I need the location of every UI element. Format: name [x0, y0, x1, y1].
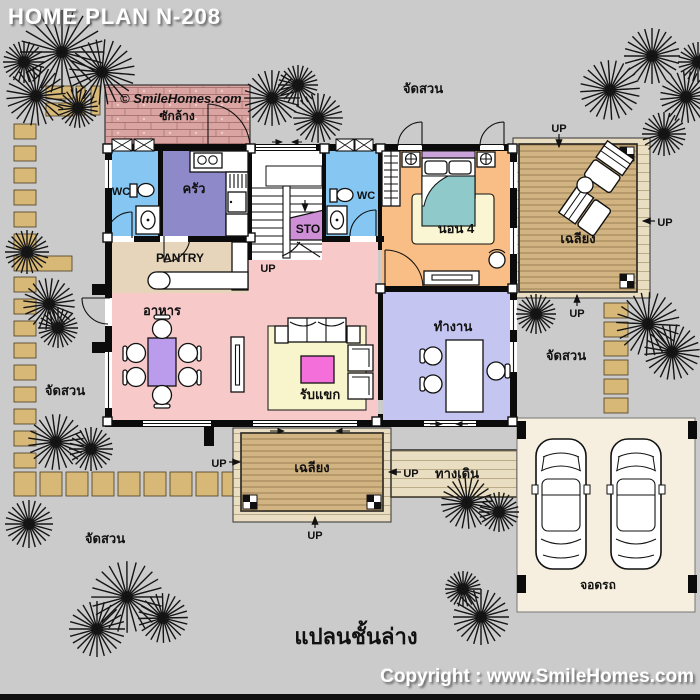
walkway-label: ทางเดิน	[435, 466, 479, 481]
garden-label-top: จัดสวน	[403, 81, 443, 96]
dining-label: อาหาร	[143, 303, 181, 318]
page-title: HOME PLAN N-208	[8, 4, 221, 29]
storage-label: STO	[296, 222, 320, 236]
up-label: UP	[657, 217, 672, 229]
garden-label-left: จัดสวน	[45, 383, 85, 398]
toilet-tank	[330, 189, 337, 202]
coffee-table	[301, 356, 334, 383]
chair-icon	[127, 368, 146, 387]
stool-icon	[489, 252, 505, 268]
laundry-label: ซักล้าง	[159, 109, 195, 123]
living-label: รับแขก	[300, 387, 341, 402]
toilet-icon	[337, 189, 353, 202]
porch-right-label: เฉลียง	[560, 231, 595, 246]
porch-front: เฉลียง	[233, 428, 391, 522]
parking-label: จอดรถ	[580, 578, 616, 592]
garage-post	[688, 421, 697, 439]
up-label: UP	[211, 458, 226, 470]
floor-plan-canvas: เฉลียง เฉลียง ทางเดิน จอดรถ ซักล้าง © Sm…	[0, 0, 700, 700]
living-area: รับแขก	[268, 318, 373, 410]
up-label: UP	[403, 468, 418, 480]
kitchen-label: ครัว	[183, 181, 206, 196]
wc-left-label: WC	[112, 186, 130, 198]
deck-post	[367, 495, 381, 509]
patio-table	[577, 177, 593, 193]
chair-icon	[127, 344, 146, 363]
window-icon	[336, 139, 354, 151]
toilet-tank	[130, 184, 137, 197]
watermark: © SmileHomes.com	[120, 91, 242, 106]
up-label: UP	[551, 123, 566, 135]
deck-post	[620, 274, 634, 288]
porch-right: เฉลียง	[513, 138, 650, 298]
up-stairs-label: UP	[260, 263, 275, 275]
bottom-border	[0, 694, 700, 700]
chair-icon	[153, 386, 172, 405]
car	[532, 439, 590, 569]
garage-post	[688, 575, 697, 593]
porch-front-label: เฉลียง	[294, 460, 329, 475]
garage-post	[517, 575, 526, 593]
car	[607, 439, 665, 569]
side-table	[275, 326, 288, 343]
window-icon	[355, 139, 373, 151]
chair-icon	[179, 344, 198, 363]
pillow	[449, 161, 471, 174]
washer-icon	[112, 139, 132, 151]
toilet-icon	[138, 184, 154, 197]
chair-icon	[153, 320, 172, 339]
bedroom4-label: นอน 4	[438, 221, 475, 236]
pillow	[425, 161, 447, 174]
office-label: ทำงาน	[434, 319, 473, 334]
side-table	[347, 326, 360, 343]
up-label: UP	[307, 530, 322, 542]
pantry-label: PANTRY	[156, 251, 204, 265]
garden-label-bottom: จัดสวน	[85, 531, 125, 546]
staircase: STO UP	[252, 150, 324, 275]
chair-icon	[424, 347, 442, 365]
base-cabinet	[226, 214, 248, 236]
divider-cabinet	[231, 337, 244, 392]
up-label: UP	[569, 308, 584, 320]
garden-label-right: จัดสวน	[546, 348, 586, 363]
desk-icon	[446, 340, 483, 412]
sofa-icon	[288, 318, 346, 342]
chair-icon	[179, 368, 198, 387]
dining-table	[148, 338, 176, 386]
headboard	[422, 151, 475, 158]
floor-plan-image: เฉลียง เฉลียง ทางเดิน จอดรถ ซักล้าง © Sm…	[0, 0, 700, 700]
garage-post	[517, 421, 526, 439]
chair-icon	[424, 375, 442, 393]
wc-right-label: WC	[357, 190, 375, 202]
deck-post	[243, 495, 257, 509]
garage: จอดรถ	[517, 418, 697, 612]
chair-icon	[487, 362, 505, 380]
copyright-text: Copyright : www.SmileHomes.com	[380, 666, 694, 687]
washer-icon	[134, 139, 154, 151]
floor-plan-title: แปลนชั้นล่าง	[294, 620, 417, 649]
